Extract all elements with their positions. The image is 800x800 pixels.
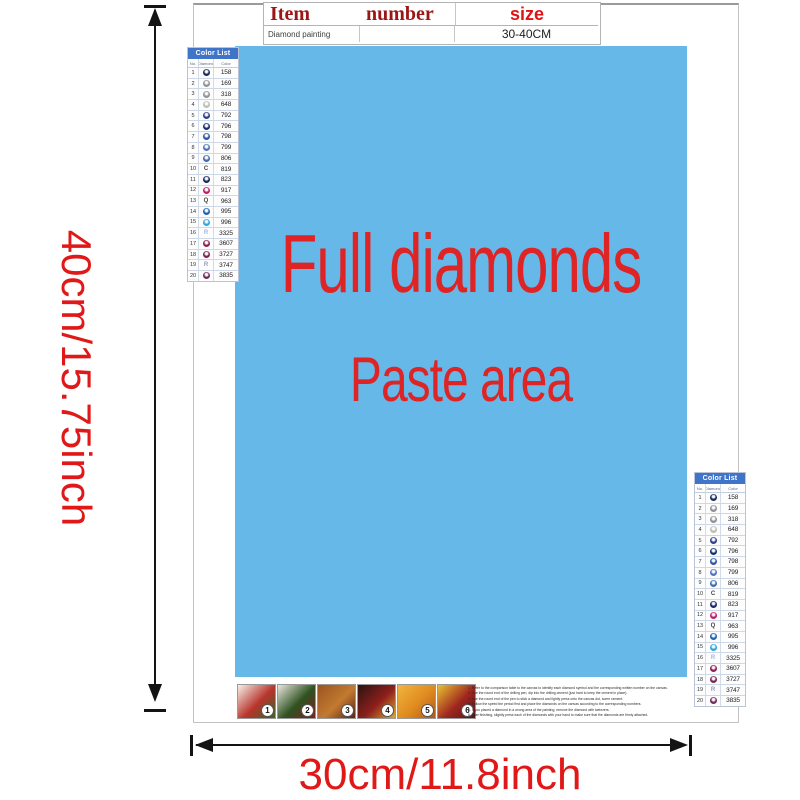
color-row-number: 11: [188, 175, 199, 185]
dmc-color-code: 995: [721, 632, 745, 642]
dmc-color-code: 823: [214, 175, 238, 185]
color-list-row: 4648: [695, 525, 745, 536]
diamond-symbol-icon: [199, 111, 214, 121]
step-thumbnail: 2: [277, 684, 316, 719]
diamond-symbol-icon: [199, 68, 214, 78]
diamond-symbol-icon: [706, 557, 721, 567]
color-list-row: 2169: [695, 504, 745, 515]
color-row-number: 6: [695, 546, 706, 556]
color-list-row: 16R3325: [695, 653, 745, 664]
dmc-color-code: 963: [214, 196, 238, 206]
color-list-col-color: Color: [721, 484, 745, 492]
color-list-row: 6796: [695, 546, 745, 557]
dmc-color-code: 796: [721, 546, 745, 556]
color-row-number: 6: [188, 121, 199, 131]
color-list-row: 19R3747: [188, 260, 238, 271]
dmc-color-code: 3835: [721, 696, 745, 706]
color-row-number: 17: [188, 239, 199, 249]
color-list-row: 13Q963: [695, 621, 745, 632]
color-row-number: 5: [188, 111, 199, 121]
item-table-cell-size: 30-40CM: [455, 26, 598, 42]
diamond-symbol-icon: [199, 121, 214, 131]
diamond-symbol-icon: [199, 186, 214, 196]
diamond-symbol-icon: [706, 643, 721, 653]
instruction-line: 6. After finishing, slightly press each …: [468, 713, 720, 718]
dmc-color-code: 3727: [721, 675, 745, 685]
dmc-color-code: 796: [214, 121, 238, 131]
color-list-row: 11823: [695, 600, 745, 611]
color-row-number: 4: [695, 525, 706, 535]
color-list-row: 10C819: [188, 164, 238, 175]
color-list-title: Color List: [695, 473, 745, 484]
color-list-row: 14995: [188, 207, 238, 218]
color-row-number: 2: [188, 79, 199, 89]
color-row-number: 1: [188, 68, 199, 78]
color-list-subheader: No. Diamond Color: [188, 59, 238, 68]
color-row-number: 11: [695, 600, 706, 610]
color-list-row: 15996: [188, 218, 238, 229]
color-list-row: 3318: [188, 89, 238, 100]
color-row-number: 18: [188, 250, 199, 260]
dmc-color-code: 798: [214, 132, 238, 142]
item-table-cell-item: Diamond painting: [264, 26, 360, 42]
dmc-color-code: 799: [721, 568, 745, 578]
color-list-right: Color List No. Diamond Color 11582169331…: [694, 472, 746, 707]
step-thumbnail: 3: [317, 684, 356, 719]
dmc-color-code: 963: [721, 621, 745, 631]
color-list-row: 183727: [188, 250, 238, 261]
color-row-number: 10: [188, 164, 199, 174]
color-list-row: 5792: [695, 536, 745, 547]
color-row-number: 15: [188, 218, 199, 228]
paste-area-subtitle: Paste area: [235, 344, 687, 417]
color-row-number: 16: [695, 653, 706, 663]
color-list-row: 203835: [188, 271, 238, 281]
color-row-number: 5: [695, 536, 706, 546]
diamond-symbol-icon: [706, 611, 721, 621]
dmc-color-code: 819: [214, 164, 238, 174]
dmc-color-code: 318: [214, 89, 238, 99]
diamond-symbol-icon: [706, 493, 721, 503]
diamond-symbol-icon: Q: [706, 621, 721, 631]
color-list-row: 5792: [188, 111, 238, 122]
diamond-symbol-icon: C: [199, 164, 214, 174]
diamond-symbol-icon: [199, 132, 214, 142]
color-row-number: 8: [695, 568, 706, 578]
color-list-col-color: Color: [214, 59, 238, 67]
color-list-row: 14995: [695, 632, 745, 643]
diamond-symbol-icon: [199, 100, 214, 110]
diamond-symbol-icon: [199, 143, 214, 153]
color-list-col-no: No.: [695, 484, 706, 492]
step-thumbnail: 1: [237, 684, 276, 719]
color-row-number: 12: [695, 611, 706, 621]
dmc-color-code: 917: [214, 186, 238, 196]
color-row-number: 7: [695, 557, 706, 567]
dmc-color-code: 169: [214, 79, 238, 89]
diamond-symbol-icon: Q: [199, 196, 214, 206]
dmc-color-code: 3747: [214, 260, 238, 270]
dmc-color-code: 648: [721, 525, 745, 535]
dmc-color-code: 3607: [721, 664, 745, 674]
step-thumbnail: 4: [357, 684, 396, 719]
color-row-number: 9: [188, 154, 199, 164]
diamond-symbol-icon: C: [706, 589, 721, 599]
color-list-row: 7798: [188, 132, 238, 143]
color-row-number: 16: [188, 228, 199, 238]
color-list-title: Color List: [188, 48, 238, 59]
color-row-number: 18: [695, 675, 706, 685]
dmc-color-code: 318: [721, 514, 745, 524]
color-list-col-diamond: Diamond: [199, 59, 214, 67]
diamond-symbol-icon: [706, 514, 721, 524]
diamond-symbol-icon: [706, 579, 721, 589]
vertical-arrow-bottom-cap: [144, 709, 166, 712]
diamond-symbol-icon: [199, 271, 214, 281]
color-list-row: 183727: [695, 675, 745, 686]
color-row-number: 12: [188, 186, 199, 196]
color-list-row: 12917: [695, 611, 745, 622]
dmc-color-code: 823: [721, 600, 745, 610]
step-number-badge: 5: [421, 704, 434, 717]
color-row-number: 3: [188, 89, 199, 99]
horizontal-arrow-line: [196, 744, 676, 746]
color-row-number: 7: [188, 132, 199, 142]
dmc-color-code: 3325: [721, 653, 745, 663]
item-info-table: Item number size Diamond painting 30-40C…: [263, 2, 601, 45]
item-table-header-item: Item: [264, 3, 360, 26]
diamond-symbol-icon: [199, 89, 214, 99]
color-row-number: 4: [188, 100, 199, 110]
horizontal-arrow-right-cap: [689, 735, 692, 756]
color-row-number: 2: [695, 504, 706, 514]
color-row-number: 1: [695, 493, 706, 503]
color-list-row: 7798: [695, 557, 745, 568]
diamond-symbol-icon: R: [199, 228, 214, 238]
color-row-number: 13: [188, 196, 199, 206]
diamond-symbol-icon: [706, 504, 721, 514]
arrow-down-icon: [148, 684, 162, 702]
color-list-col-diamond: Diamond: [706, 484, 721, 492]
item-table-cell-number: [360, 26, 455, 42]
color-row-number: 17: [695, 664, 706, 674]
color-list-row: 15996: [695, 643, 745, 654]
color-row-number: 15: [695, 643, 706, 653]
dmc-color-code: 995: [214, 207, 238, 217]
color-list-col-no: No.: [188, 59, 199, 67]
diamond-symbol-icon: [706, 546, 721, 556]
dmc-color-code: 3835: [214, 271, 238, 281]
color-row-number: 20: [188, 271, 199, 281]
diamond-symbol-icon: [706, 568, 721, 578]
diamond-symbol-icon: [199, 218, 214, 228]
color-row-number: 10: [695, 589, 706, 599]
color-list-row: 16R3325: [188, 228, 238, 239]
dmc-color-code: 996: [721, 643, 745, 653]
dmc-color-code: 3747: [721, 685, 745, 695]
step-thumbnail: 5: [397, 684, 436, 719]
dmc-color-code: 158: [214, 68, 238, 78]
color-list-row: 10C819: [695, 589, 745, 600]
color-row-number: 8: [188, 143, 199, 153]
diamond-symbol-icon: [706, 536, 721, 546]
diamond-symbol-icon: R: [199, 260, 214, 270]
dmc-color-code: 648: [214, 100, 238, 110]
dmc-color-code: 792: [214, 111, 238, 121]
diamond-symbol-icon: [706, 675, 721, 685]
diamond-symbol-icon: [199, 207, 214, 217]
color-list-row: 2169: [188, 79, 238, 90]
color-row-number: 14: [695, 632, 706, 642]
color-row-number: 13: [695, 621, 706, 631]
diamond-symbol-icon: [706, 600, 721, 610]
diamond-symbol-icon: [199, 175, 214, 185]
color-list-row: 4648: [188, 100, 238, 111]
color-list-row: 8799: [695, 568, 745, 579]
color-list-row: 6796: [188, 121, 238, 132]
dmc-color-code: 819: [721, 589, 745, 599]
color-row-number: 3: [695, 514, 706, 524]
product-infographic: Full diamonds Paste area Item number siz…: [0, 0, 800, 800]
color-row-number: 14: [188, 207, 199, 217]
instruction-text: 1. Refer to the comparison table to the …: [468, 686, 720, 719]
dmc-color-code: 799: [214, 143, 238, 153]
diamond-symbol-icon: [199, 239, 214, 249]
color-row-number: 9: [695, 579, 706, 589]
diamond-symbol-icon: [706, 525, 721, 535]
color-list-row: 1158: [695, 493, 745, 504]
diamond-symbol-icon: [706, 664, 721, 674]
color-list-row: 1158: [188, 68, 238, 79]
dmc-color-code: 806: [721, 579, 745, 589]
dmc-color-code: 3607: [214, 239, 238, 249]
diamond-symbol-icon: [199, 250, 214, 260]
diamond-symbol-icon: [706, 632, 721, 642]
step-number-badge: 3: [341, 704, 354, 717]
step-number-badge: 4: [381, 704, 394, 717]
color-list-row: 9806: [695, 579, 745, 590]
color-list-row: 12917: [188, 186, 238, 197]
vertical-arrow-line: [154, 10, 156, 690]
dmc-color-code: 3325: [214, 228, 238, 238]
color-list-row: 9806: [188, 154, 238, 165]
color-list-row: 173607: [695, 664, 745, 675]
color-list-row: 173607: [188, 239, 238, 250]
color-list-row: 8799: [188, 143, 238, 154]
dmc-color-code: 798: [721, 557, 745, 567]
diamond-symbol-icon: [199, 154, 214, 164]
height-dimension-label: 40cm/15.75inch: [52, 228, 100, 528]
color-row-number: 19: [188, 260, 199, 270]
item-table-header-size: size: [455, 3, 598, 26]
step-thumbnails: 123456: [237, 684, 476, 717]
color-list-left: Color List No. Diamond Color 11582169331…: [187, 47, 239, 282]
dmc-color-code: 158: [721, 493, 745, 503]
dmc-color-code: 792: [721, 536, 745, 546]
step-number-badge: 2: [301, 704, 314, 717]
dmc-color-code: 3727: [214, 250, 238, 260]
item-table-header-number: number: [360, 3, 455, 26]
horizontal-arrow-left-cap: [190, 735, 193, 756]
dmc-color-code: 917: [721, 611, 745, 621]
dmc-color-code: 169: [721, 504, 745, 514]
diamond-symbol-icon: R: [706, 653, 721, 663]
step-number-badge: 1: [261, 704, 274, 717]
dmc-color-code: 806: [214, 154, 238, 164]
color-list-row: 3318: [695, 514, 745, 525]
width-dimension-label: 30cm/11.8inch: [200, 750, 680, 800]
color-list-row: 13Q963: [188, 196, 238, 207]
diamond-symbol-icon: [199, 79, 214, 89]
color-list-subheader: No. Diamond Color: [695, 484, 745, 493]
dmc-color-code: 996: [214, 218, 238, 228]
paste-area-title: Full diamonds: [235, 216, 687, 311]
color-list-row: 11823: [188, 175, 238, 186]
